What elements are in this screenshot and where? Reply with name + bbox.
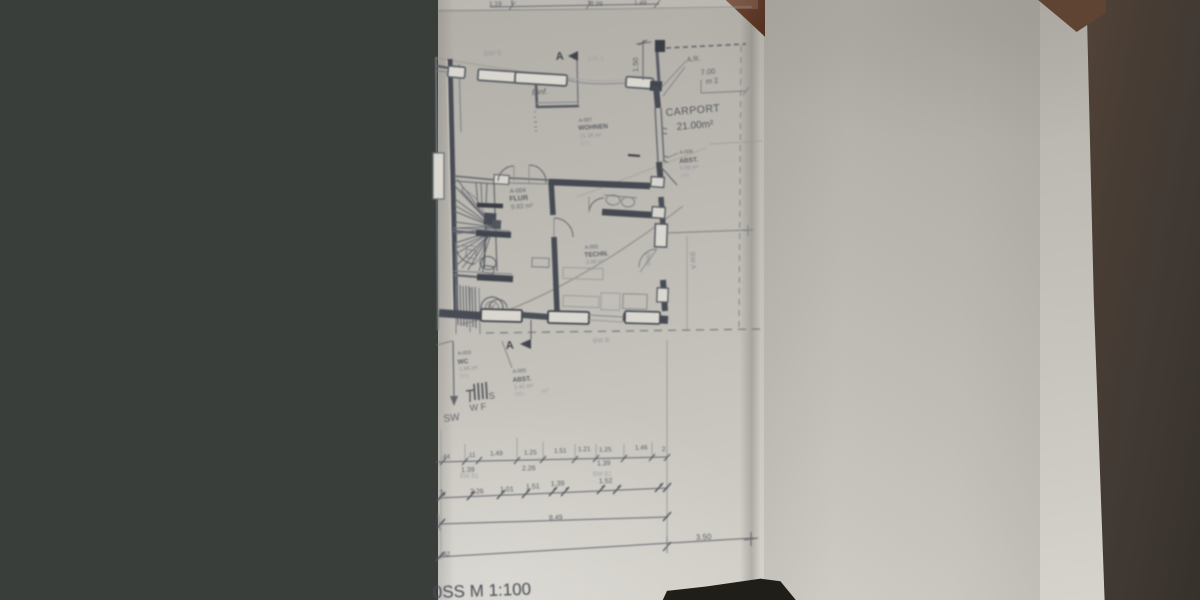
- svg-text:21.36 m²: 21.36 m²: [580, 132, 602, 140]
- svg-text:(06): (06): [680, 172, 690, 179]
- svg-text:BW E: BW E: [484, 50, 503, 58]
- svg-text:1.49: 1.49: [634, 0, 647, 7]
- svg-text:3.50: 3.50: [696, 532, 713, 542]
- svg-text:1.50: 1.50: [631, 57, 640, 72]
- svg-text:1.86 m²: 1.86 m²: [459, 365, 478, 373]
- svg-text:2: 2: [662, 446, 666, 453]
- svg-text:2.26: 2.26: [470, 488, 484, 495]
- svg-text:1.41 m²: 1.41 m²: [514, 383, 533, 391]
- svg-text:1.51: 1.51: [554, 448, 567, 455]
- svg-text:A-004: A-004: [510, 188, 527, 195]
- svg-text:9.83 m²: 9.83 m²: [511, 202, 534, 211]
- svg-text:A: A: [555, 50, 564, 63]
- svg-text:BW 1: BW 1: [588, 55, 605, 63]
- svg-text:1.19: 1.19: [489, 1, 502, 8]
- svg-text:(07): (07): [580, 140, 590, 147]
- svg-text:1.39: 1.39: [461, 467, 475, 474]
- svg-text:BW B: BW B: [593, 337, 610, 345]
- svg-text:.44: .44: [441, 454, 451, 461]
- svg-text:(Wg): (Wg): [644, 253, 651, 266]
- svg-text:A-005: A-005: [513, 368, 527, 375]
- svg-text:8.49: 8.49: [549, 515, 563, 522]
- svg-text:TECHN.: TECHN.: [584, 250, 609, 259]
- svg-text:.11: .11: [467, 452, 476, 459]
- svg-text:2.39: 2.39: [590, 1, 603, 8]
- svg-text:1.21: 1.21: [578, 446, 591, 453]
- svg-text:5.06 m²: 5.06 m²: [680, 164, 699, 172]
- svg-text:1.49: 1.49: [490, 450, 503, 457]
- svg-text:3.98 m²: 3.98 m²: [586, 259, 605, 266]
- svg-text:A-003: A-003: [458, 350, 472, 357]
- svg-text:0SS M 1:100: 0SS M 1:100: [432, 580, 531, 600]
- svg-text:m²: m²: [542, 388, 549, 395]
- svg-text:Einf.: Einf.: [532, 87, 549, 97]
- svg-text:21.00m²: 21.00m²: [676, 119, 714, 133]
- svg-text:(02): (02): [586, 266, 596, 273]
- svg-text:FLUR: FLUR: [509, 195, 528, 203]
- svg-text:m 2: m 2: [705, 76, 718, 86]
- svg-text:A: A: [505, 339, 514, 352]
- svg-text:1.25: 1.25: [599, 446, 612, 453]
- svg-text:CARPORT: CARPORT: [665, 102, 721, 119]
- svg-text:.82: .82: [441, 551, 450, 558]
- svg-text:BW B1: BW B1: [460, 474, 479, 480]
- svg-text:1.52: 1.52: [599, 478, 613, 485]
- svg-text:1: 1: [439, 488, 444, 498]
- svg-text:2.26: 2.26: [522, 465, 536, 472]
- svg-text:(03): (03): [460, 373, 470, 380]
- svg-text:SW: SW: [443, 412, 461, 425]
- svg-text:W F: W F: [469, 401, 487, 413]
- svg-text:1.39: 1.39: [551, 480, 565, 487]
- svg-text:BW A: BW A: [688, 252, 697, 270]
- svg-text:1.51: 1.51: [526, 483, 540, 490]
- svg-text:A-006: A-006: [679, 149, 693, 156]
- svg-text:1.39: 1.39: [597, 460, 611, 467]
- svg-text:(05): (05): [515, 391, 525, 398]
- svg-text:A-002: A-002: [585, 244, 599, 251]
- svg-text:A-007: A-007: [579, 117, 593, 124]
- svg-text:1.01: 1.01: [500, 486, 514, 493]
- svg-text:S: S: [488, 391, 495, 401]
- svg-text:WC: WC: [457, 358, 469, 366]
- svg-text:A.R.: A.R.: [686, 56, 700, 64]
- svg-text:1.25: 1.25: [524, 449, 537, 456]
- svg-text:1.46: 1.46: [635, 444, 648, 451]
- svg-text:WOHNEN: WOHNEN: [578, 123, 608, 132]
